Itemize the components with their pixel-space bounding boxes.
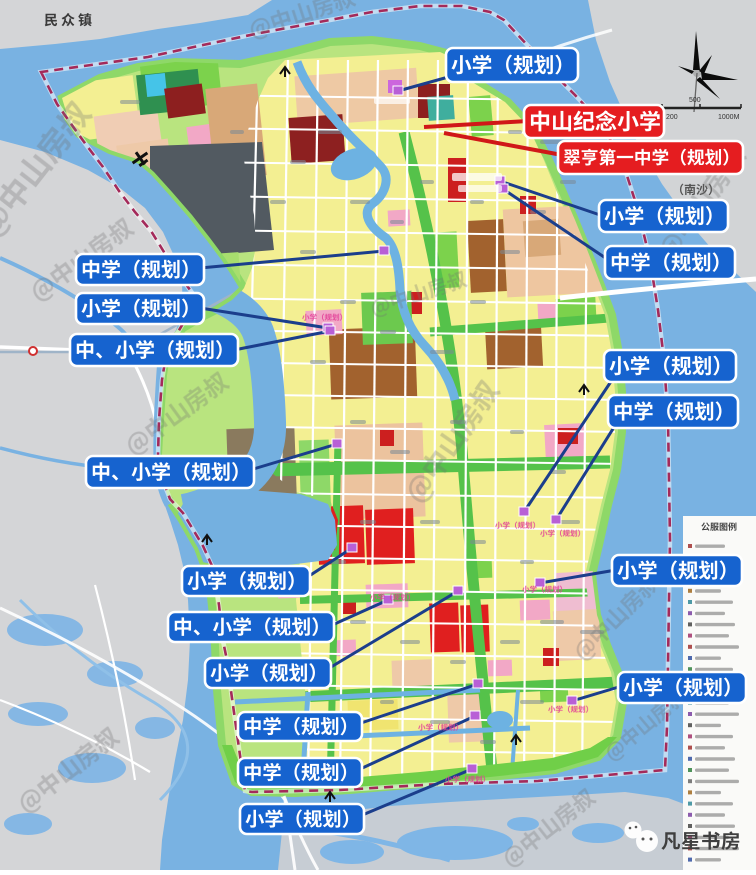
svg-text:500: 500 — [689, 97, 701, 104]
svg-text:1000M: 1000M — [718, 114, 740, 121]
svg-text:200: 200 — [666, 114, 678, 121]
